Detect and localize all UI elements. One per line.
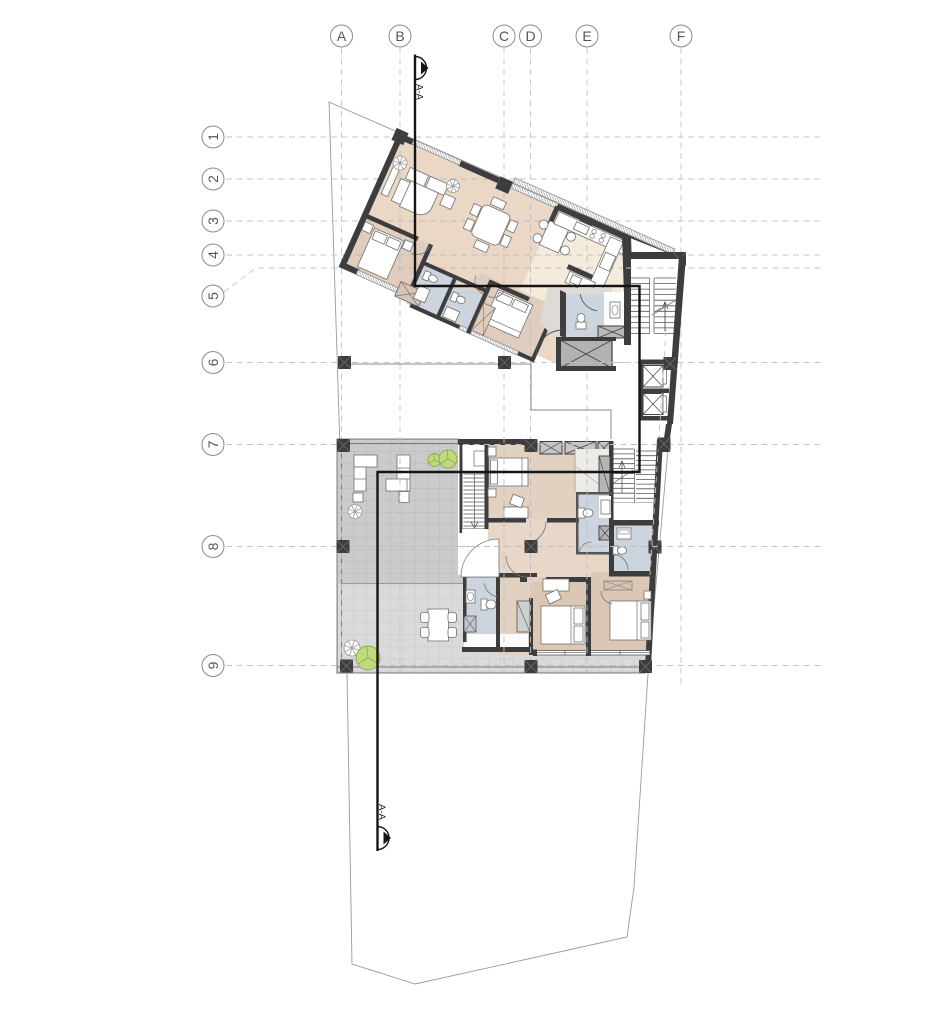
svg-text:D: D bbox=[525, 28, 535, 44]
svg-text:3: 3 bbox=[205, 217, 221, 225]
svg-text:B: B bbox=[395, 28, 404, 44]
svg-text:1: 1 bbox=[205, 133, 221, 141]
svg-text:A: A bbox=[337, 28, 347, 44]
svg-text:6: 6 bbox=[205, 358, 221, 366]
svg-text:9: 9 bbox=[205, 661, 221, 669]
svg-text:7: 7 bbox=[205, 440, 221, 448]
svg-text:E: E bbox=[582, 28, 591, 44]
svg-text:8: 8 bbox=[205, 542, 221, 550]
svg-text:2: 2 bbox=[205, 175, 221, 183]
svg-text:A-A: A-A bbox=[414, 84, 425, 101]
svg-text:A-A: A-A bbox=[376, 804, 387, 821]
svg-text:C: C bbox=[499, 28, 509, 44]
svg-text:F: F bbox=[677, 28, 686, 44]
svg-text:5: 5 bbox=[205, 292, 221, 300]
svg-text:4: 4 bbox=[205, 251, 221, 259]
